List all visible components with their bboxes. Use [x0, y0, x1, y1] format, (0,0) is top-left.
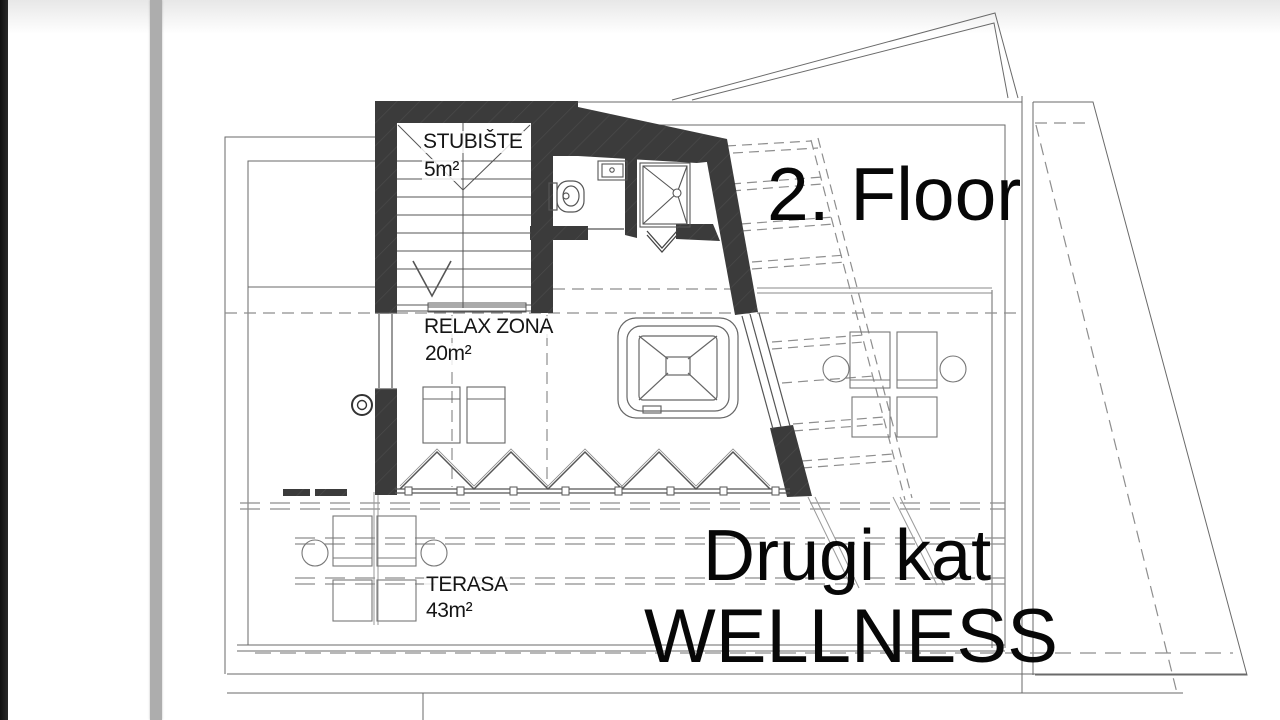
terrace-label: TERASA	[424, 574, 510, 596]
window-diagonal	[742, 313, 790, 429]
relax-zone-label: RELAX ZONA	[422, 316, 555, 338]
floor-title-croatian: Drugi kat	[703, 520, 991, 592]
floor-plan-page: STUBIŠTE 5m² RELAX ZONA 20m² TERASA 43m²…	[0, 0, 1280, 720]
floor-title-english: 2. Floor	[767, 157, 1021, 232]
staircase-label: STUBIŠTE	[421, 131, 524, 153]
relax-zone-area: 20m²	[423, 343, 473, 365]
shower-bifold-door	[647, 231, 677, 252]
stair-direction-arrow	[413, 261, 451, 296]
door-knob-icon	[352, 395, 372, 415]
zone-title: WELLNESS	[644, 599, 1058, 675]
window-left	[375, 313, 397, 389]
lounger-icons	[423, 387, 505, 443]
terrace-table-set-upper	[823, 332, 966, 437]
folding-door-zigzag	[395, 449, 790, 495]
jacuzzi-icon	[618, 318, 738, 418]
terrace-area: 43m²	[424, 600, 474, 622]
sink-icon	[598, 161, 627, 180]
shower-icon	[640, 163, 690, 227]
toilet-icon	[549, 181, 584, 212]
staircase-area: 5m²	[422, 159, 461, 181]
floor-plan-drawing	[0, 0, 1280, 720]
